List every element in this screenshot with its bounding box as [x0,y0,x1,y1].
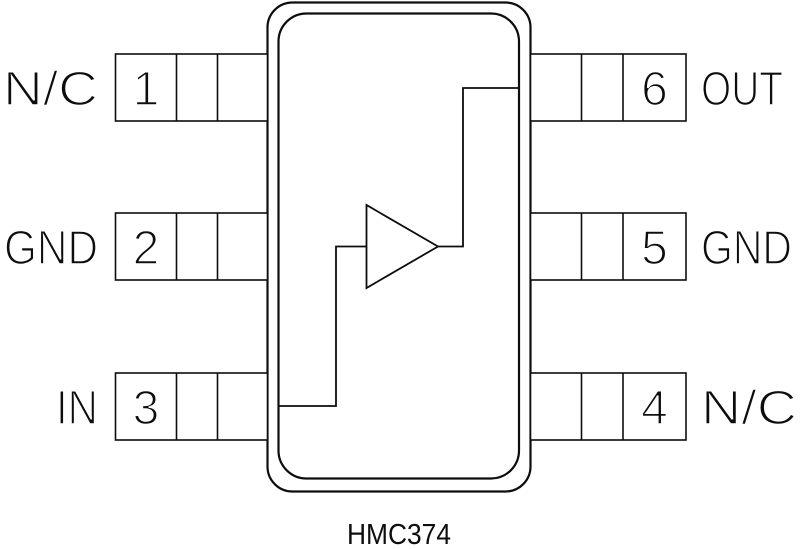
pin-3: 3 IN [56,373,268,440]
pin-1-label: N/C [3,63,98,116]
pin-2-number: 2 [133,222,160,275]
part-number-label: HMC374 [347,519,451,549]
pinout-diagram: 1 N/C 2 GND 3 IN 6 OUT [0,0,800,549]
pin-3-label: IN [56,382,98,435]
pin-1-number: 1 [133,63,160,116]
pin-1: 1 N/C [3,54,268,121]
pin-2: 2 GND [4,213,268,280]
input-trace [279,247,367,407]
pin-5-number: 5 [641,222,668,275]
pin-3-number: 3 [133,382,160,435]
pin-2-label: GND [4,222,98,275]
pin-5-label: GND [701,222,792,275]
pin-4-number: 4 [641,382,668,435]
pin-5: 5 GND [531,213,793,280]
amplifier-icon [367,205,439,288]
pin-6-label: OUT [701,63,783,116]
pin-6-number: 6 [641,63,668,116]
output-trace [438,88,519,247]
pin-4: 4 N/C [531,373,798,440]
pinout-svg: 1 N/C 2 GND 3 IN 6 OUT [0,0,800,549]
pin-6: 6 OUT [531,54,784,121]
pin-4-label: N/C [701,382,797,435]
